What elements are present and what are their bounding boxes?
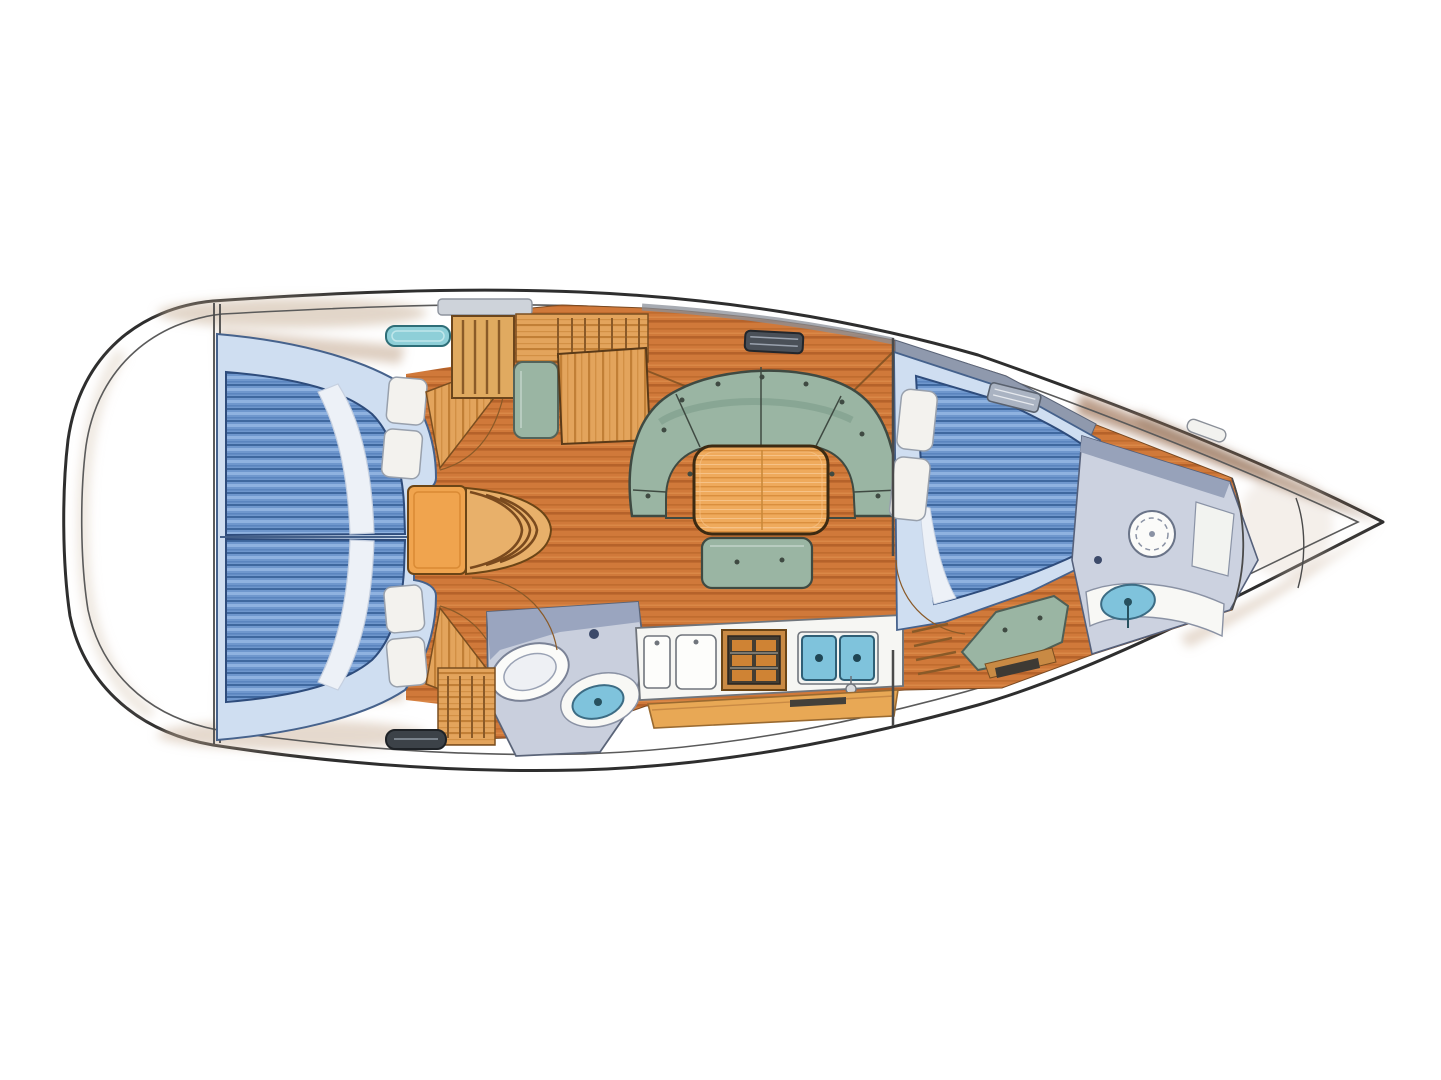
chart-table [558, 348, 650, 444]
door-knob [589, 629, 599, 639]
salon-hatch [745, 330, 804, 353]
boat-floor-plan-image [0, 0, 1441, 1080]
aft-port-hatch [386, 326, 450, 346]
door-knob [1094, 556, 1102, 564]
sliding-hatch [438, 299, 532, 315]
salon-table [694, 446, 828, 534]
floor-plan-svg [0, 0, 1441, 1080]
stove [722, 630, 786, 690]
nav-chair-seat [408, 486, 466, 574]
companionway-steps [452, 316, 514, 398]
galley-double-sink [798, 632, 878, 694]
aft-head-locker [438, 668, 495, 745]
forward-head-toilet [1129, 511, 1175, 557]
forward-head-cabinet [1192, 502, 1234, 576]
galley [636, 615, 903, 728]
